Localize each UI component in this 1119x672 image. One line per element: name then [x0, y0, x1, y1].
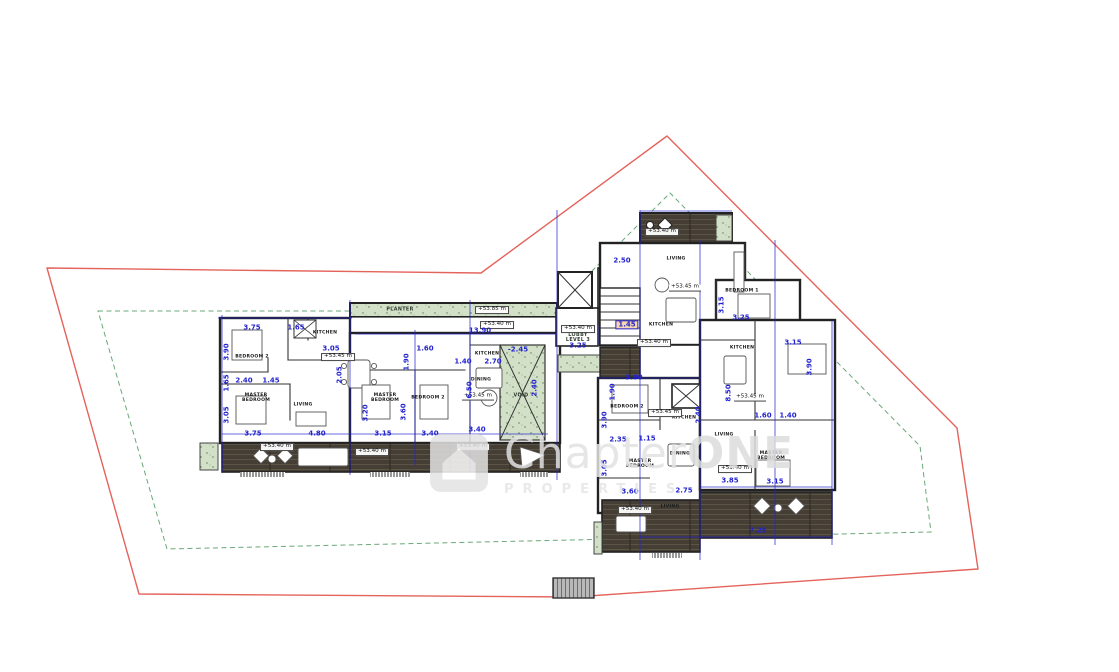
- watermark: ChapterONE PROPERTIES: [428, 432, 794, 497]
- watermark-brand-bold: ONE: [687, 428, 794, 479]
- watermark-subtitle: PROPERTIES: [504, 482, 794, 497]
- watermark-brand: ChapterONE: [504, 432, 794, 476]
- house-logo-icon: [428, 432, 490, 494]
- entry-gate: [553, 578, 594, 598]
- floor-plan-canvas: [0, 0, 1119, 672]
- floor-plan-page: BEDROOM 2KITCHENMASTER BEDROOMLIVINGMAST…: [0, 0, 1119, 672]
- watermark-brand-regular: Chapter: [504, 428, 687, 479]
